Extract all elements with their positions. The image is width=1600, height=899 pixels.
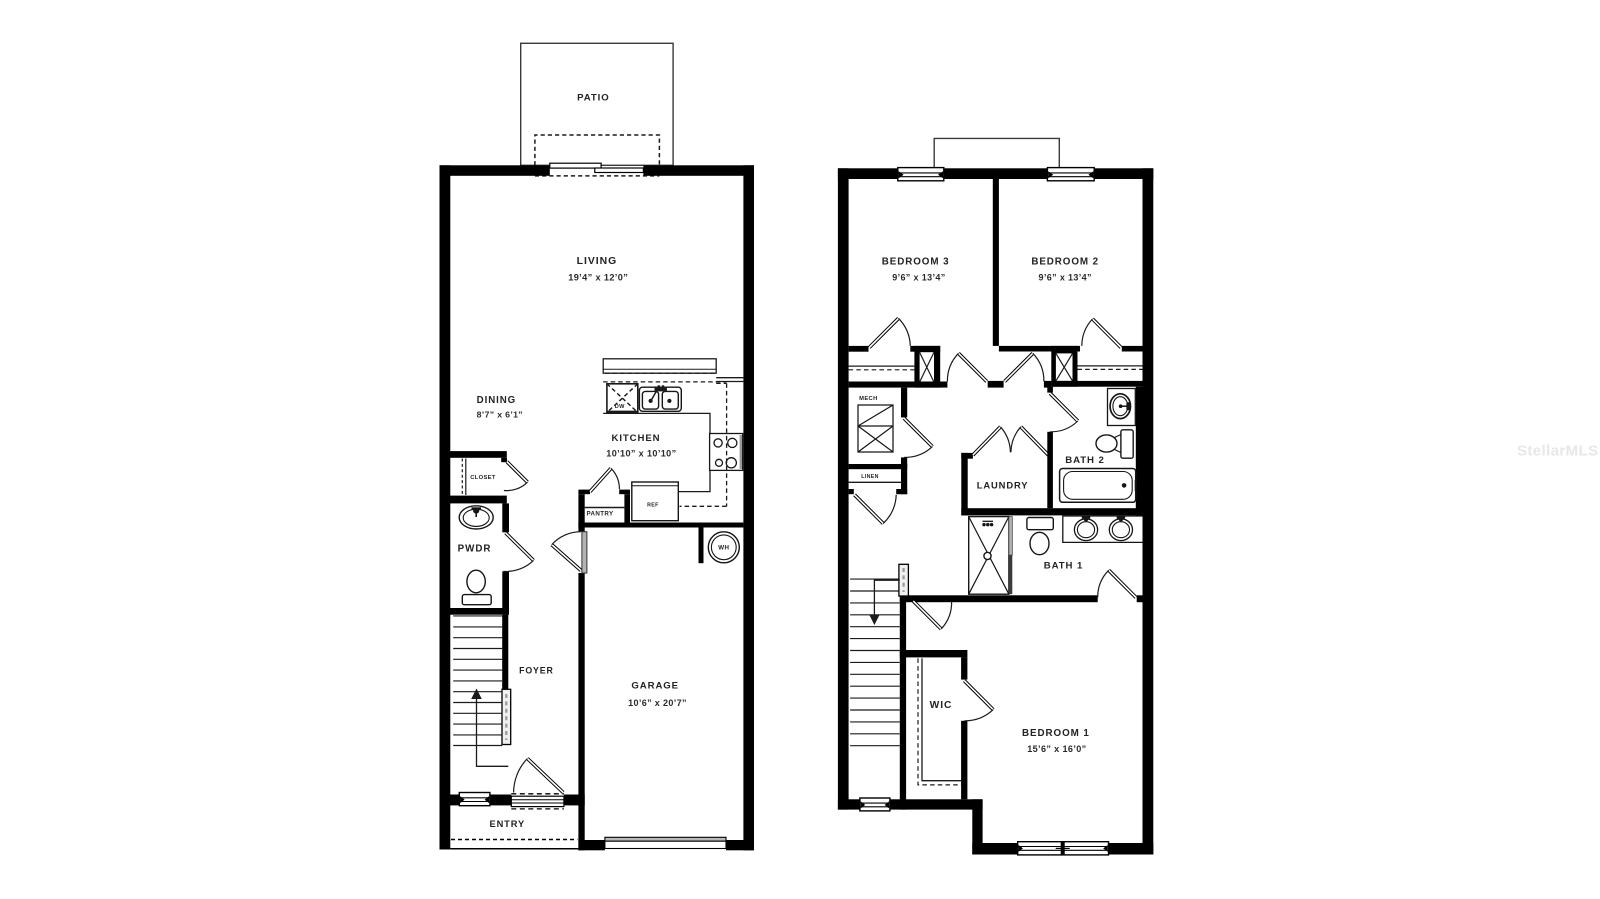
svg-text:10’10” x 10’10”: 10’10” x 10’10” xyxy=(606,448,676,458)
svg-text:WIC: WIC xyxy=(930,700,953,711)
svg-text:9’6” x 13’4”: 9’6” x 13’4” xyxy=(892,273,945,283)
svg-text:GARAGE: GARAGE xyxy=(631,680,679,691)
svg-text:BEDROOM 3: BEDROOM 3 xyxy=(882,257,950,268)
svg-text:10’6” x 20’7”: 10’6” x 20’7” xyxy=(628,698,687,708)
svg-text:PANTRY: PANTRY xyxy=(587,511,614,518)
svg-text:CLOSET: CLOSET xyxy=(470,475,496,481)
svg-text:KITCHEN: KITCHEN xyxy=(611,433,660,444)
svg-text:LAUNDRY: LAUNDRY xyxy=(977,480,1029,491)
svg-text:PATIO: PATIO xyxy=(577,93,609,104)
svg-text:19’4” x 12’0”: 19’4” x 12’0” xyxy=(568,272,628,282)
svg-text:FOYER: FOYER xyxy=(519,665,553,675)
svg-text:DINING: DINING xyxy=(477,395,516,406)
svg-text:MECH: MECH xyxy=(859,396,877,402)
svg-text:LIVING: LIVING xyxy=(577,256,618,267)
svg-text:BEDROOM 2: BEDROOM 2 xyxy=(1031,257,1099,268)
svg-text:StellarMLS: StellarMLS xyxy=(1517,443,1599,460)
svg-text:LINEN: LINEN xyxy=(861,474,878,480)
svg-text:BATH 2: BATH 2 xyxy=(1065,455,1104,466)
svg-text:BEDROOM 1: BEDROOM 1 xyxy=(1022,728,1090,739)
svg-text:15’6” x 16’0”: 15’6” x 16’0” xyxy=(1027,744,1086,754)
svg-text:REF: REF xyxy=(647,503,659,509)
svg-text:DW: DW xyxy=(615,404,625,410)
svg-text:9’6” x 13’4”: 9’6” x 13’4” xyxy=(1039,273,1092,283)
svg-text:WH: WH xyxy=(718,545,729,552)
svg-text:8’7” x 6’1”: 8’7” x 6’1” xyxy=(477,410,523,420)
svg-text:PWDR: PWDR xyxy=(458,543,492,554)
svg-text:ENTRY: ENTRY xyxy=(490,819,526,829)
svg-text:BATH 1: BATH 1 xyxy=(1044,561,1083,572)
